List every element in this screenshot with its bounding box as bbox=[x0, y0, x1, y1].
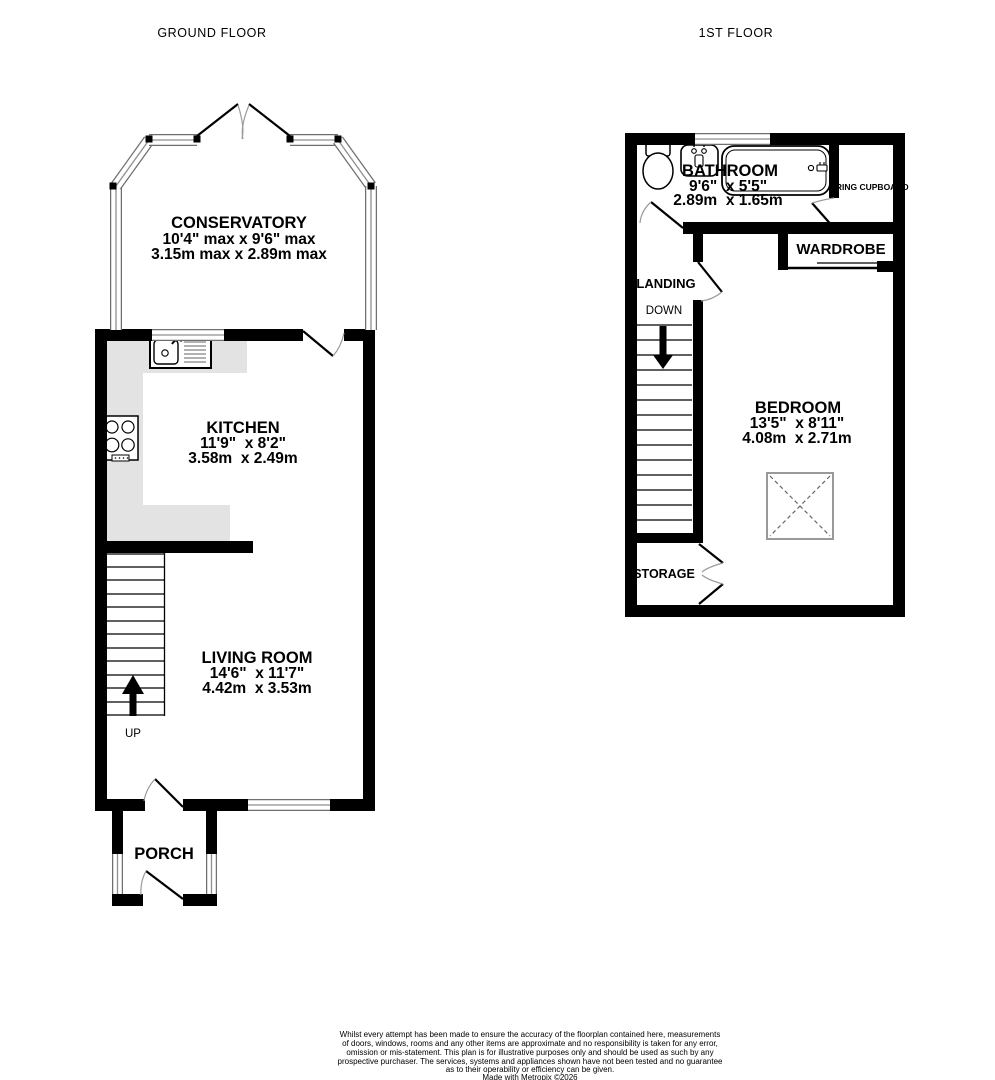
wardrobe-label: WARDROBE bbox=[796, 241, 885, 258]
conservatory-dims-metric: 3.15m max x 2.89m max bbox=[151, 246, 327, 263]
bedroom-door bbox=[698, 262, 722, 301]
front-door bbox=[144, 779, 183, 807]
landing-label: LANDING bbox=[636, 276, 695, 291]
down-arrow-icon bbox=[653, 326, 673, 369]
hob-fixture bbox=[103, 416, 138, 461]
first-floor-plan: BATHROOM 9'6" x 5'5" 2.89m x 1.65m AIRIN… bbox=[625, 133, 909, 617]
footer-disclaimer: Whilst every attempt has been made to en… bbox=[338, 1030, 724, 1080]
conservatory-french-doors bbox=[197, 104, 290, 139]
ground-floor-title: GROUND FLOOR bbox=[157, 26, 266, 40]
down-label: DOWN bbox=[646, 305, 682, 317]
wardrobe-front bbox=[788, 261, 893, 272]
toilet-fixture bbox=[643, 143, 673, 189]
bathroom-dims-metric: 2.89m x 1.65m bbox=[673, 192, 782, 209]
made-with-credit: Made with Metropix ©2026 bbox=[482, 1073, 578, 1080]
living-room-dims-metric: 4.42m x 3.53m bbox=[202, 680, 311, 697]
loft-hatch bbox=[767, 473, 833, 539]
conservatory-label: CONSERVATORY bbox=[171, 214, 307, 232]
up-arrow-icon bbox=[122, 675, 144, 716]
porch-label: PORCH bbox=[134, 845, 194, 863]
disclaimer-line: omission or mis-statement. This plan is … bbox=[346, 1048, 713, 1057]
storage-doors bbox=[699, 544, 723, 604]
disclaimer-line: of doors, windows, rooms and any other i… bbox=[342, 1039, 718, 1048]
floorplan-page: GROUND FLOOR 1ST FLOOR bbox=[0, 0, 995, 1080]
first-floor-title: 1ST FLOOR bbox=[699, 26, 774, 40]
storage-label: STORAGE bbox=[633, 567, 695, 581]
kitchen-dims-metric: 3.58m x 2.49m bbox=[188, 450, 297, 467]
porch-door bbox=[141, 871, 183, 899]
ground-floor-plan: CONSERVATORY 10'4" max x 9'6" max 3.15m … bbox=[95, 104, 375, 906]
bedroom-dims-metric: 4.08m x 2.71m bbox=[742, 430, 851, 447]
floorplan-svg: GROUND FLOOR 1ST FLOOR bbox=[0, 0, 995, 1080]
disclaimer-line: Whilst every attempt has been made to en… bbox=[340, 1030, 721, 1039]
kitchen-door bbox=[303, 331, 344, 356]
up-label: UP bbox=[125, 728, 141, 740]
